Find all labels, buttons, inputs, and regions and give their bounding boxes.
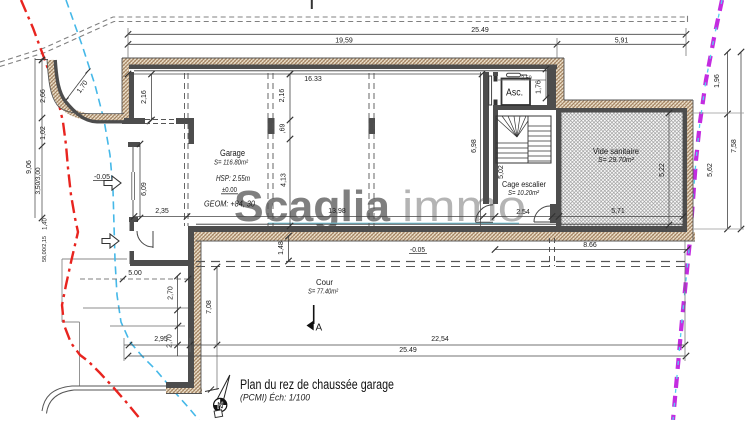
svg-text:9,06: 9,06	[26, 160, 33, 174]
svg-text:16.33: 16.33	[304, 76, 322, 83]
svg-text:2,35: 2,35	[155, 208, 169, 215]
svg-text:Garage: Garage	[220, 148, 245, 158]
svg-text:S= 77.40m²: S= 77.40m²	[308, 287, 338, 296]
svg-text:6,09: 6,09	[141, 182, 148, 196]
svg-text:±0.00: ±0.00	[222, 187, 237, 194]
svg-text:13,98: 13,98	[328, 208, 346, 215]
svg-text:1,48: 1,48	[278, 241, 285, 255]
svg-text:1,02: 1,02	[40, 126, 47, 140]
svg-text:3,50/3,00: 3,50/3,00	[35, 167, 42, 194]
svg-text:2.54: 2.54	[516, 209, 530, 216]
svg-text:-0.05: -0.05	[410, 247, 425, 254]
svg-text:N: N	[217, 401, 224, 411]
svg-text:4,13: 4,13	[281, 173, 288, 187]
svg-text:8.66: 8.66	[583, 242, 597, 249]
svg-text:GEOM: +84, 30: GEOM: +84, 30	[204, 199, 255, 209]
svg-text:1,76: 1,76	[536, 80, 543, 94]
svg-text:,69: ,69	[280, 124, 287, 134]
svg-text:5,91: 5,91	[615, 38, 629, 45]
svg-text:5,22: 5,22	[659, 163, 666, 177]
svg-text:Asc.: Asc.	[506, 88, 523, 99]
svg-text:25.49: 25.49	[399, 347, 417, 354]
svg-text:22,54: 22,54	[431, 336, 449, 343]
svg-text:Cage escalier: Cage escalier	[502, 180, 546, 189]
svg-text:Vide sanitaire: Vide sanitaire	[593, 147, 640, 156]
svg-text:5.00: 5.00	[128, 270, 142, 277]
svg-text:5,62: 5,62	[707, 163, 714, 177]
svg-text:5,02: 5,02	[498, 165, 505, 179]
svg-text:S= 10.20m²: S= 10.20m²	[508, 190, 540, 197]
svg-text:2,16: 2,16	[279, 89, 286, 103]
svg-text:Cour: Cour	[316, 277, 333, 287]
svg-text:25.49: 25.49	[471, 27, 489, 34]
svg-text:19,59: 19,59	[335, 38, 353, 45]
svg-text:1,40: 1,40	[43, 218, 49, 230]
svg-text:1,96: 1,96	[714, 74, 721, 88]
svg-text:58,00/2,15: 58,00/2,15	[42, 236, 48, 262]
svg-text:7,08: 7,08	[206, 300, 213, 314]
svg-text:2,50: 2,50	[521, 76, 532, 82]
svg-text:S= 29.70m²: S= 29.70m²	[598, 157, 635, 164]
svg-text:HSP: 2.55m: HSP: 2.55m	[216, 174, 250, 183]
svg-text:S= 116.80m²: S= 116.80m²	[214, 158, 248, 167]
svg-text:2,95: 2,95	[154, 336, 168, 343]
svg-text:6,98: 6,98	[471, 139, 478, 153]
svg-text:2,66: 2,66	[40, 89, 47, 103]
svg-text:5,71: 5,71	[611, 208, 625, 215]
svg-text:2,16: 2,16	[141, 90, 148, 104]
svg-text:A: A	[316, 323, 323, 334]
svg-text:(PCMI) Éch: 1/100: (PCMI) Éch: 1/100	[240, 393, 311, 404]
svg-text:2,70: 2,70	[168, 286, 175, 300]
svg-text:7,58: 7,58	[731, 139, 738, 153]
svg-text:Plan du rez de chaussée garage: Plan du rez de chaussée garage	[240, 377, 394, 392]
